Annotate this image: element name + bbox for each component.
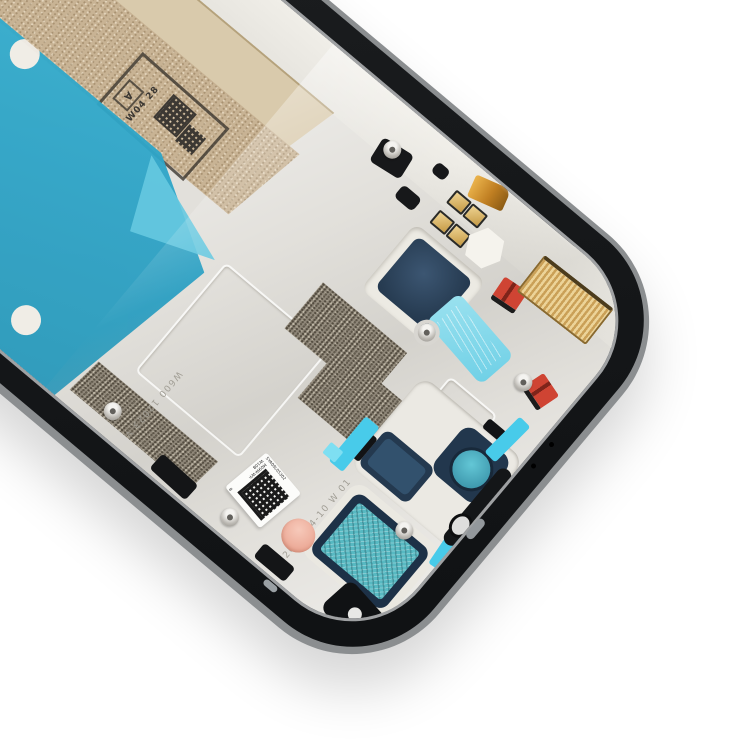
inner-metal-plate: A W04 28 2023-04-10 W 01 — [0, 0, 651, 653]
sticker-text-bottom: 8 — [228, 487, 233, 492]
photo-stage: A W04 28 2023-04-10 W 01 — [0, 0, 750, 750]
film-hole-bottom — [5, 299, 47, 341]
phone-frame-assembly: A W04 28 2023-04-10 W 01 — [0, 0, 687, 690]
stamp-letter: A — [122, 89, 135, 102]
